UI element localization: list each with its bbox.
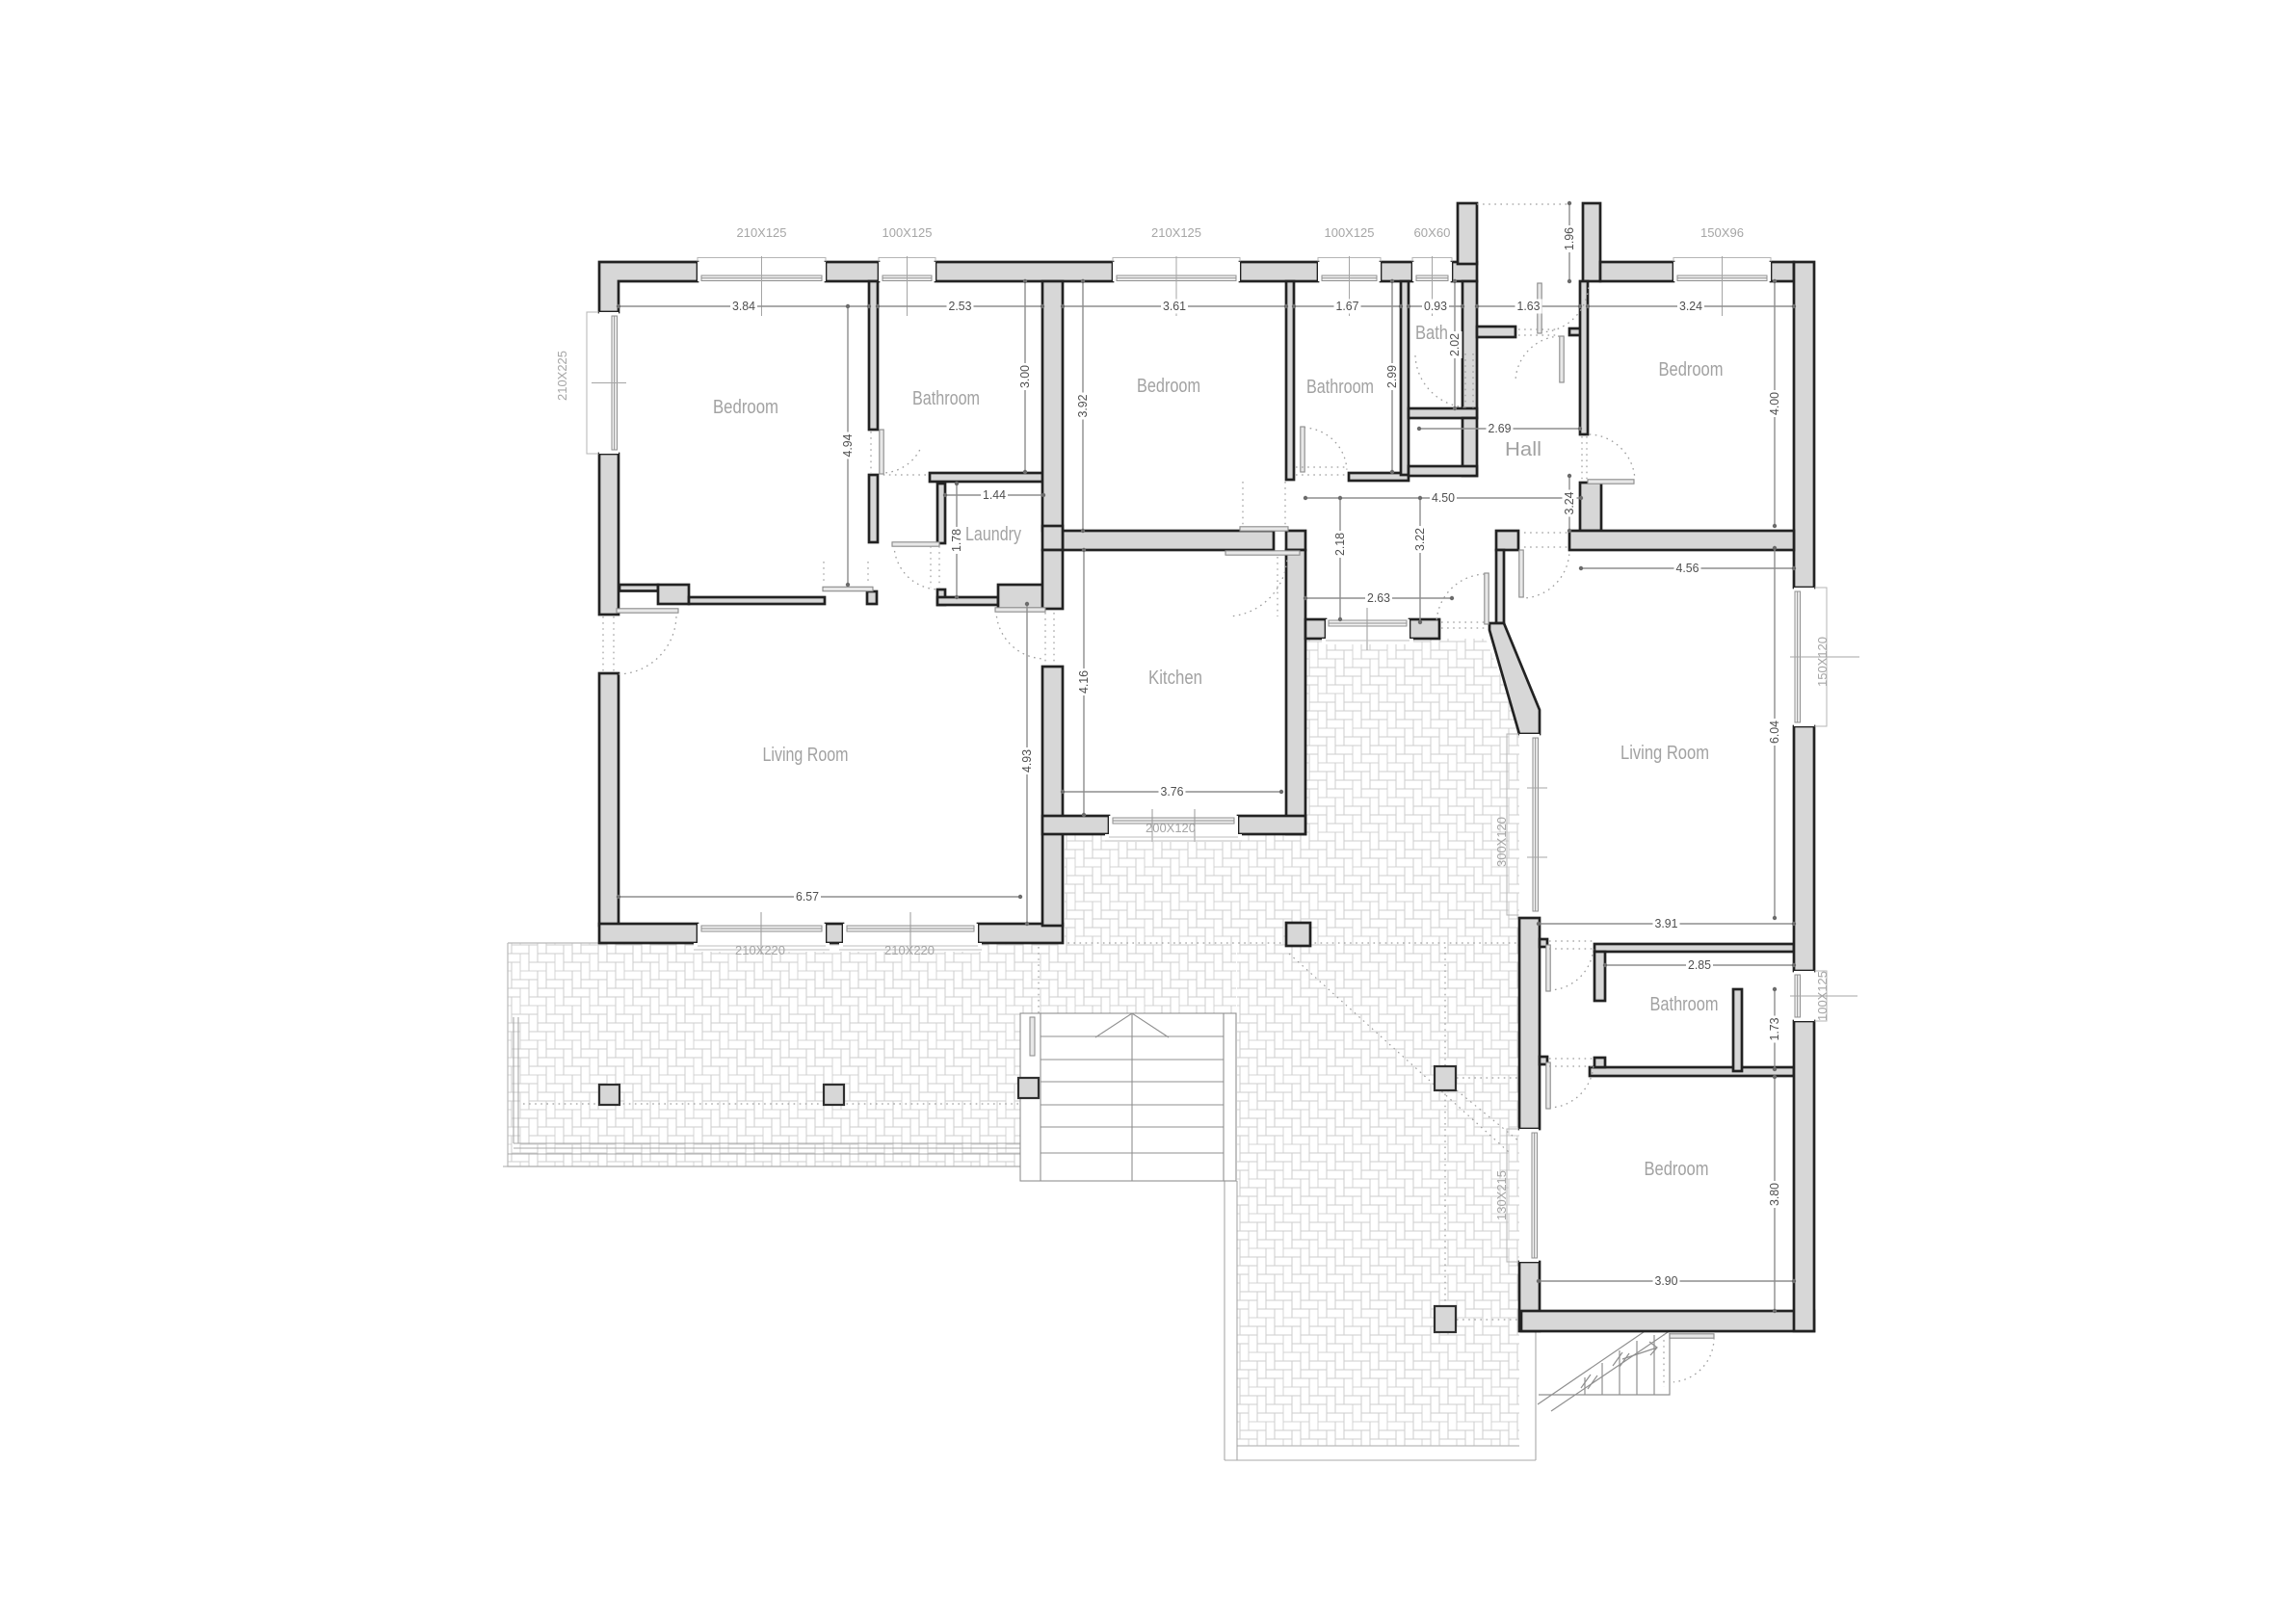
svg-text:210X220: 210X220 [735,944,785,957]
svg-text:3.91: 3.91 [1655,917,1678,930]
svg-text:6.04: 6.04 [1768,720,1781,744]
svg-text:210X125: 210X125 [1151,226,1201,240]
svg-text:Bath: Bath [1415,323,1448,344]
svg-text:3.80: 3.80 [1768,1183,1781,1206]
svg-text:4.94: 4.94 [841,433,855,457]
svg-text:1.67: 1.67 [1336,300,1359,313]
svg-text:200X120: 200X120 [1146,822,1196,835]
svg-text:100X125: 100X125 [883,226,933,240]
svg-text:3.90: 3.90 [1655,1274,1678,1288]
svg-text:300X120: 300X120 [1495,817,1509,867]
svg-text:Laundry: Laundry [965,524,1021,545]
svg-text:Hall: Hall [1505,439,1541,460]
svg-text:4.50: 4.50 [1432,491,1455,505]
svg-text:4.56: 4.56 [1676,562,1699,575]
svg-text:1.78: 1.78 [950,529,963,552]
svg-text:1.73: 1.73 [1768,1017,1781,1040]
svg-text:Living Room: Living Room [1620,743,1709,764]
svg-text:Bathroom: Bathroom [912,388,980,409]
svg-text:3.61: 3.61 [1163,300,1186,313]
svg-text:1.63: 1.63 [1517,300,1541,313]
svg-text:6.57: 6.57 [796,890,819,904]
svg-text:3.92: 3.92 [1076,394,1090,417]
svg-text:3.84: 3.84 [732,300,755,313]
svg-text:Bedroom: Bedroom [1645,1159,1709,1180]
svg-text:210X225: 210X225 [556,351,569,401]
svg-text:2.18: 2.18 [1333,533,1347,556]
svg-text:3.24: 3.24 [1563,491,1576,514]
svg-text:4.16: 4.16 [1077,670,1091,694]
svg-text:4.93: 4.93 [1020,749,1034,773]
svg-text:2.53: 2.53 [949,300,972,313]
svg-text:3.24: 3.24 [1679,300,1702,313]
svg-text:150X96: 150X96 [1700,226,1744,240]
svg-text:2.99: 2.99 [1385,365,1399,388]
svg-text:Living Room: Living Room [763,745,849,766]
svg-text:1.96: 1.96 [1563,227,1576,250]
svg-text:2.63: 2.63 [1367,591,1390,605]
svg-text:2.02: 2.02 [1448,333,1462,356]
svg-text:Kitchen: Kitchen [1148,668,1202,689]
svg-text:2.69: 2.69 [1488,422,1512,435]
svg-text:Bathroom: Bathroom [1650,994,1719,1015]
svg-text:4.00: 4.00 [1768,392,1781,415]
svg-text:Bedroom: Bedroom [713,397,778,418]
svg-text:210X125: 210X125 [737,226,787,240]
svg-text:1.44: 1.44 [983,488,1006,502]
svg-text:0.93: 0.93 [1424,300,1447,313]
svg-text:2.85: 2.85 [1688,958,1711,972]
svg-text:3.00: 3.00 [1018,365,1032,388]
svg-text:3.76: 3.76 [1161,785,1184,799]
svg-text:3.22: 3.22 [1413,528,1427,551]
svg-text:Bedroom: Bedroom [1659,359,1724,380]
svg-text:100X125: 100X125 [1325,226,1375,240]
svg-text:60X60: 60X60 [1414,226,1451,240]
svg-text:210X220: 210X220 [884,944,935,957]
svg-text:Bedroom: Bedroom [1137,376,1200,397]
svg-text:Bathroom: Bathroom [1306,377,1374,398]
svg-text:130X215: 130X215 [1495,1170,1509,1220]
svg-text:150X120: 150X120 [1816,637,1830,687]
